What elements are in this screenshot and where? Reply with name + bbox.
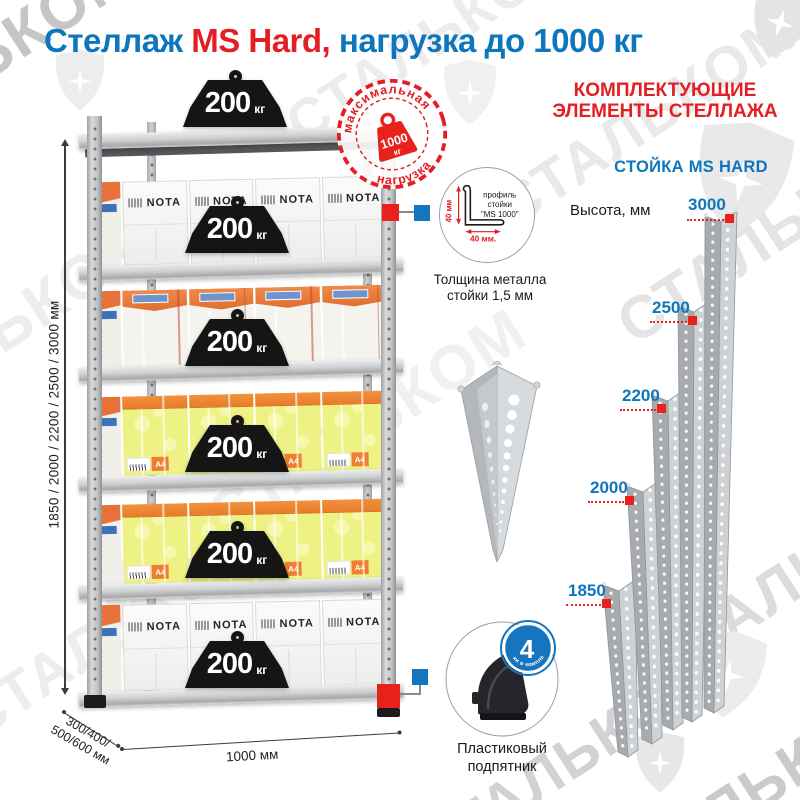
post-dotted-leader	[687, 219, 724, 221]
callout-red-square	[382, 204, 399, 221]
barcode-icon	[195, 621, 208, 630]
box-lid	[122, 395, 187, 409]
post-marker	[688, 316, 697, 325]
post-dotted-leader	[620, 409, 656, 411]
profile-caption: "MS 1000"	[481, 210, 519, 219]
barcode-icon	[127, 565, 151, 580]
callout-red-square	[377, 684, 400, 708]
stand-title: СТОЙКА MS HARD	[561, 158, 800, 177]
post-dotted-leader	[650, 321, 687, 323]
height-units-label: Высота, мм	[570, 202, 650, 219]
foot-caption: Пластиковый подпятник	[437, 740, 567, 776]
paper-box: А4	[322, 499, 388, 579]
post-marker	[625, 496, 634, 505]
weight-value: 200	[207, 432, 252, 465]
foot-badge-value: 4	[520, 634, 535, 664]
post-3000	[704, 208, 738, 713]
plastic-foot	[84, 695, 106, 708]
barcode-icon	[261, 619, 274, 628]
box-lid	[122, 503, 187, 517]
callout-blue-square	[414, 205, 430, 221]
box-brand-label: NOTA	[279, 617, 314, 630]
profile-caption: стойки	[487, 200, 512, 209]
barcode-icon	[129, 622, 142, 631]
title-part: нагрузка до 1000 кг	[330, 22, 642, 59]
thickness-line1: Толщина металла	[423, 272, 557, 288]
post-height-label-2500: 2500	[652, 298, 690, 318]
box-label	[199, 292, 235, 302]
rack-upright-front	[87, 116, 102, 695]
shield-logo	[440, 58, 500, 128]
a4-label: А4	[152, 565, 169, 579]
weight-200kg: 200кг	[183, 70, 287, 127]
dim-width-label: 1000 мм	[226, 747, 279, 765]
barcode-icon	[326, 453, 350, 468]
weight-value: 200	[205, 87, 250, 120]
foot-badge: 4 штуки в комплекте	[501, 621, 555, 675]
profile-dim-horizontal: 40 мм.	[470, 233, 496, 243]
barcode-icon	[328, 618, 341, 627]
thickness-line2: стойки 1,5 мм	[423, 288, 557, 304]
barcode-icon	[326, 561, 350, 576]
paper-box: NOTA	[122, 603, 188, 691]
post-marker	[657, 404, 666, 413]
weight-200kg: 200кг	[185, 521, 289, 578]
box-lid	[322, 391, 387, 405]
title-part: Стеллаж	[44, 22, 191, 59]
callout-line	[399, 211, 415, 213]
barcode-icon	[328, 194, 341, 203]
weight-unit: кг	[256, 341, 267, 355]
a4-label: А4	[351, 452, 368, 466]
weight-200kg: 200кг	[185, 631, 289, 688]
post-marker	[725, 214, 734, 223]
page-title: Стеллаж MS Hard, нагрузка до 1000 кг	[44, 22, 643, 60]
box-brand-label: NOTA	[213, 618, 248, 631]
barcode-icon	[129, 199, 142, 208]
barcode-icon	[127, 457, 151, 472]
weight-unit: кг	[256, 553, 267, 567]
weight-value: 200	[207, 213, 252, 246]
box-lid	[255, 392, 320, 406]
weight-value: 200	[207, 538, 252, 571]
weight-200kg: 200кг	[185, 415, 289, 472]
rack-upright-front	[381, 116, 396, 695]
post-height-label-2000: 2000	[590, 478, 628, 498]
thickness-note: Толщина металла стойки 1,5 мм	[423, 272, 557, 304]
weight-unit: кг	[256, 447, 267, 461]
paper-box: NOTA	[321, 599, 387, 687]
weight-value: 200	[207, 648, 252, 681]
box-brand-label: NOTA	[346, 615, 381, 628]
a4-label: А4	[152, 457, 169, 471]
posts-illustration	[555, 195, 755, 775]
paper-box: А4	[322, 391, 388, 471]
plastic-foot-circle: 4 штуки в комплекте	[444, 616, 562, 742]
plastic-foot	[377, 708, 400, 717]
components-header-line2: ЭЛЕМЕНТЫ СТЕЛЛАЖА	[535, 101, 795, 122]
box-brand-label: NOTA	[146, 620, 181, 633]
title-part-model: MS Hard,	[191, 22, 330, 59]
product-diagram: СТАЛЬКОМ СТАЛЬКОМ СТАЛЬКОМ СТАЛЬКОМ СТАЛ…	[0, 0, 800, 800]
foot-caption-line2: подпятник	[437, 758, 567, 776]
box-lid	[189, 394, 254, 408]
weight-unit: кг	[256, 228, 267, 242]
post-height-label-3000: 3000	[688, 195, 726, 215]
weight-value: 200	[207, 326, 252, 359]
post-dotted-leader	[588, 501, 624, 503]
profile-caption: профиль	[483, 190, 516, 199]
foot-caption-line1: Пластиковый	[437, 740, 567, 758]
weight-200kg: 200кг	[185, 309, 289, 366]
paper-box	[122, 289, 188, 366]
weight-200kg: 200кг	[185, 196, 289, 253]
box-label	[133, 294, 169, 304]
paper-box	[322, 285, 388, 362]
profile-dim-vertical: 40 мм	[445, 200, 454, 223]
components-header: КОМПЛЕКТУЮЩИЕ ЭЛЕМЕНТЫ СТЕЛЛАЖА	[535, 80, 795, 123]
post-marker	[602, 599, 611, 608]
box-label	[332, 289, 368, 299]
box-brand-label: NOTA	[146, 196, 181, 209]
callout-blue-square	[412, 669, 428, 685]
paper-box: А4	[122, 395, 188, 475]
box-label	[266, 291, 302, 301]
box-lid	[189, 502, 254, 516]
dim-height-label: 1850 / 2000 / 2200 / 2500 / 3000 мм	[47, 255, 62, 575]
paper-box: NOTA	[122, 180, 188, 265]
dim-height-line	[64, 141, 66, 693]
callout-line	[400, 685, 421, 695]
paper-box: А4	[122, 503, 188, 583]
post-height-label-2200: 2200	[622, 386, 660, 406]
components-header-line1: КОМПЛЕКТУЮЩИЕ	[535, 80, 795, 101]
box-lid	[255, 500, 320, 514]
box-lid	[322, 499, 387, 513]
weight-unit: кг	[254, 102, 265, 116]
post-height-label-1850: 1850	[568, 581, 606, 601]
profile-detail-circle: 40 мм 40 мм. профиль стойки "MS 1000"	[438, 166, 536, 264]
post-3d-view	[447, 352, 553, 570]
weight-unit: кг	[256, 663, 267, 677]
post-dotted-leader	[566, 604, 601, 606]
a4-label: А4	[351, 560, 368, 574]
